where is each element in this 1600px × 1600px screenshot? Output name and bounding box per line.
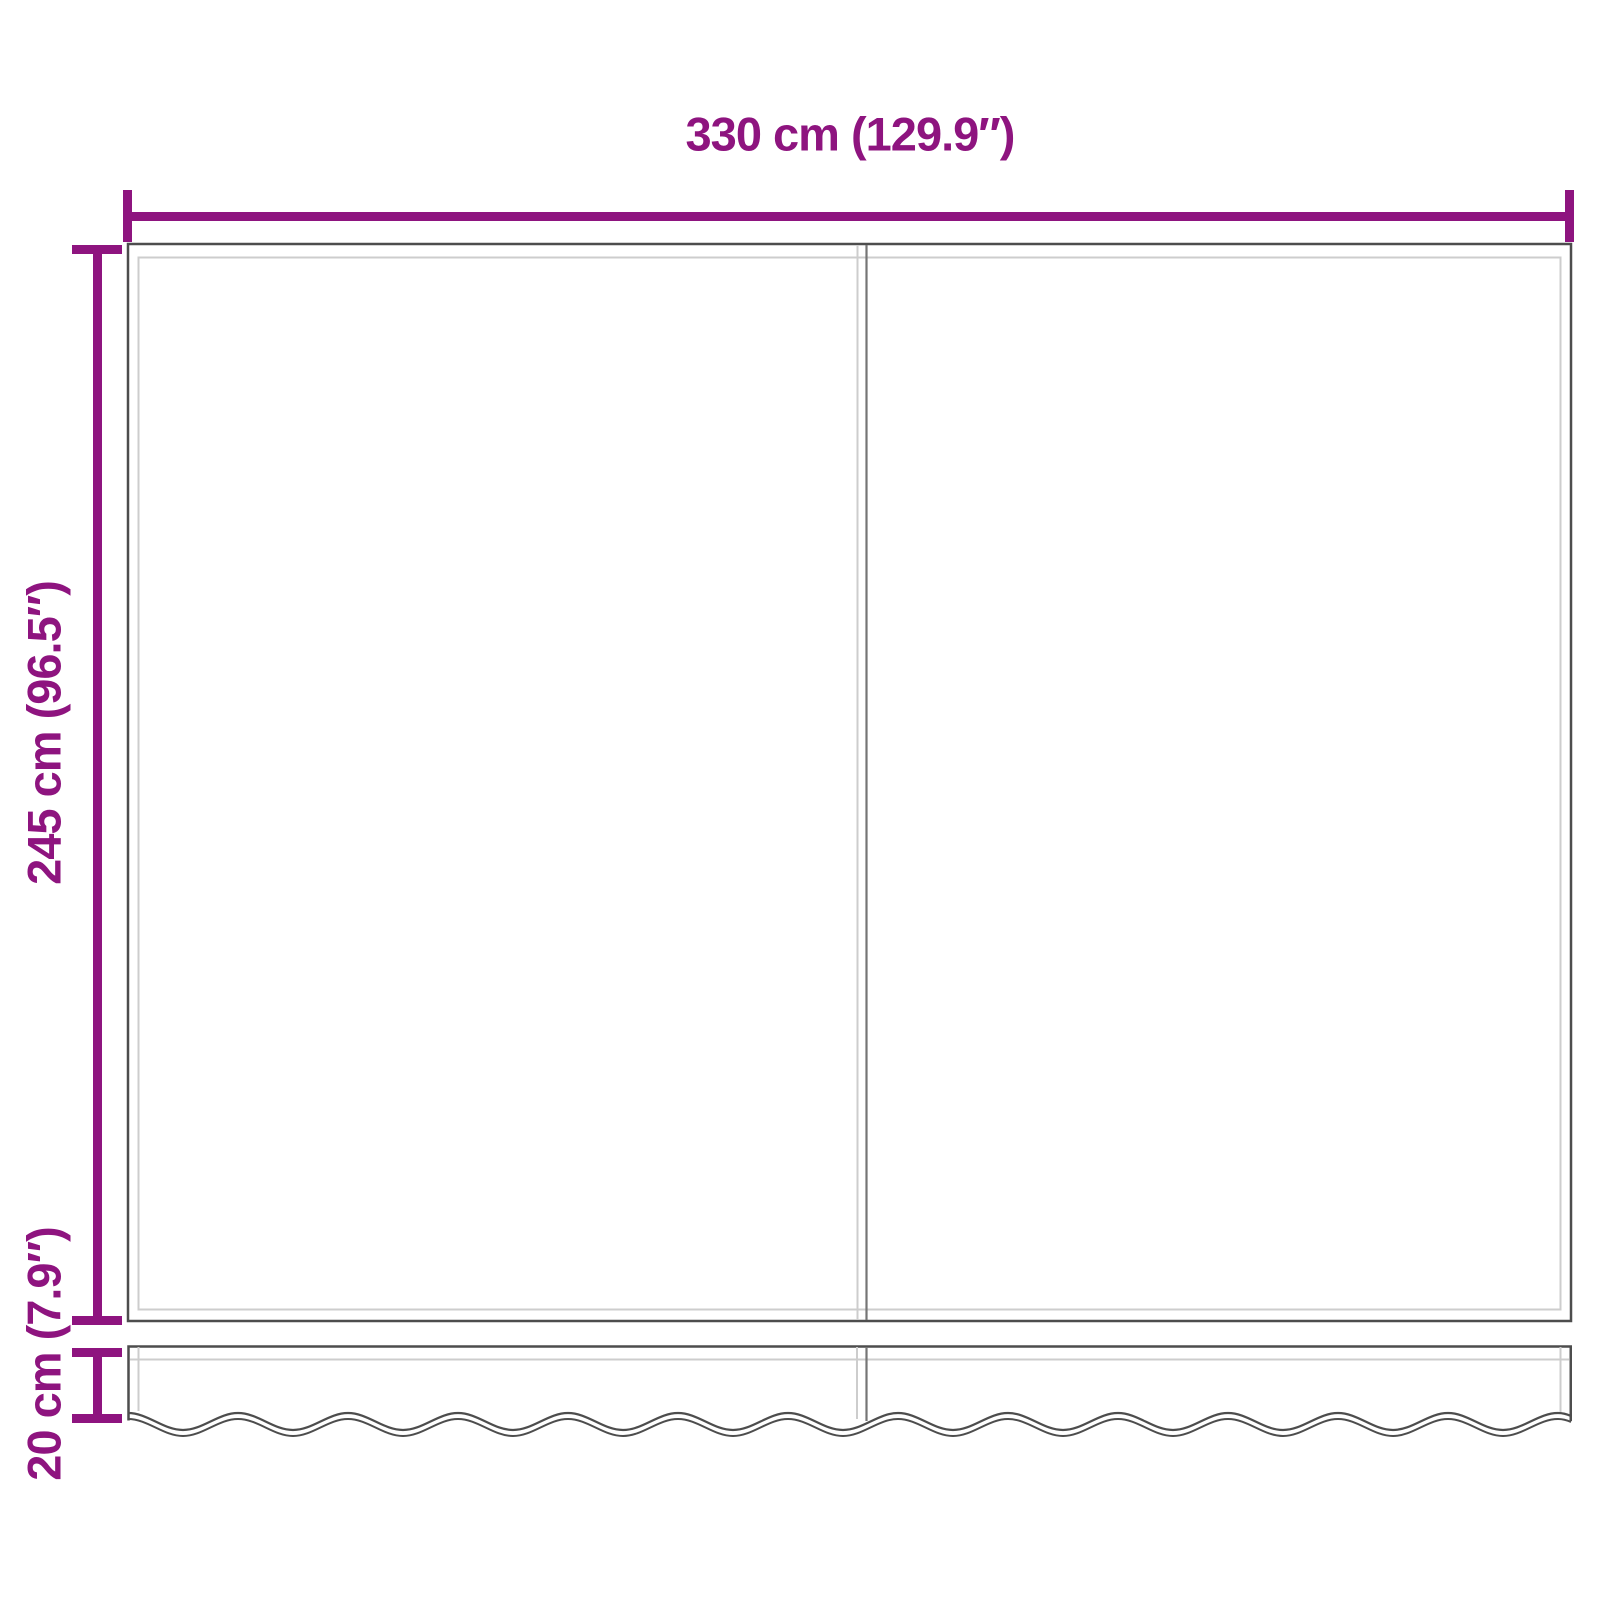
height-dimension-line (93, 247, 102, 1318)
width-dimension-tick-right (1565, 190, 1574, 242)
height-dimension-tick-top (72, 245, 122, 254)
fabric-panel-outline (128, 244, 1571, 1321)
height-dimension-tick-bottom (72, 1316, 122, 1325)
valance-dimension-label: 20 cm (7.9″) (17, 1227, 72, 1480)
fabric-stitch-line (139, 258, 1561, 1310)
width-dimension-line (128, 212, 1569, 221)
valance-scallop-edge-inner (128, 1419, 1571, 1436)
valance-dimension-tick-top (72, 1348, 122, 1357)
valance-dimension-tick-bottom (72, 1414, 122, 1423)
fabric-drawing (0, 0, 1600, 1600)
height-dimension-label: 245 cm (96.5″) (17, 581, 72, 885)
valance-outline (129, 1347, 1571, 1422)
width-dimension-tick-left (123, 190, 132, 242)
awning-fabric-dimension-diagram: { "diagram": { "width_label": "330 cm (1… (0, 0, 1600, 1600)
width-dimension-label: 330 cm (129.9″) (686, 107, 1015, 162)
valance-dimension-line (93, 1350, 102, 1419)
